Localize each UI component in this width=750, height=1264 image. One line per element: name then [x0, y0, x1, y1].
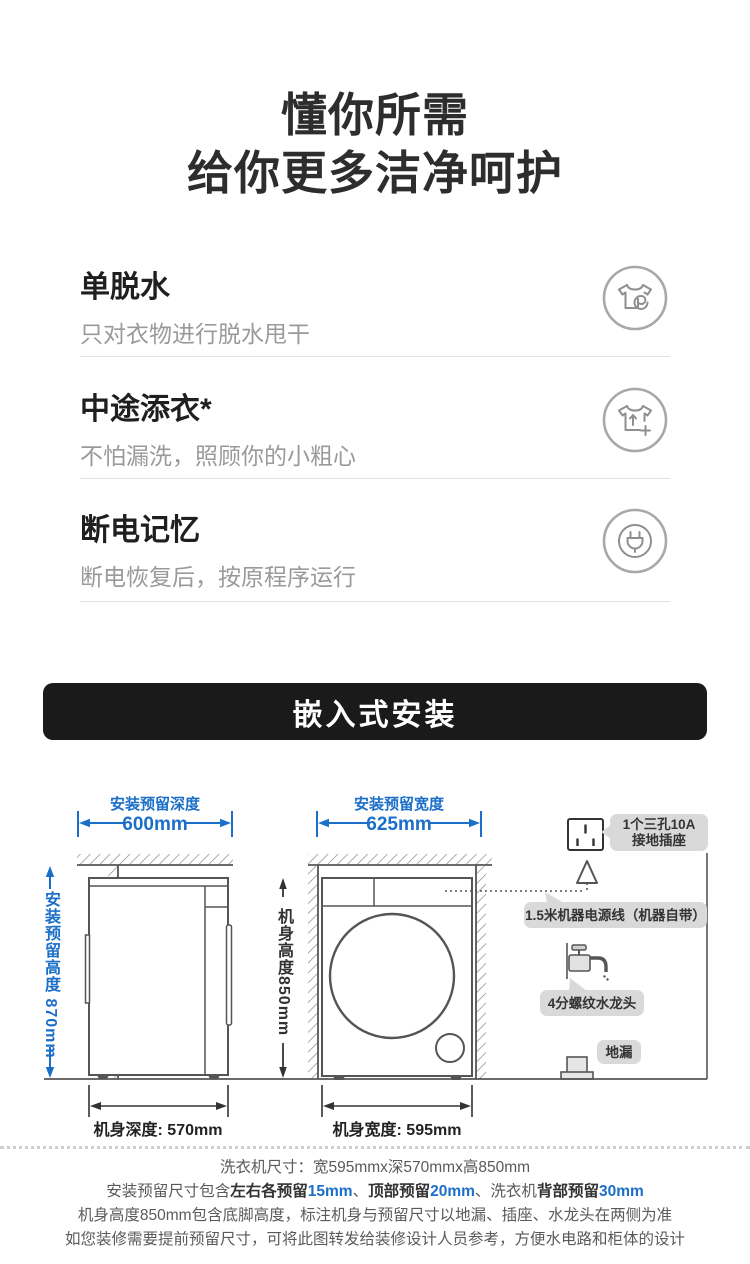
power-plug-icon [602, 508, 668, 574]
footnote-line2-sep1: 、 [353, 1183, 369, 1200]
installation-diagram: 安装预留深度 600mm 安装预留宽度 625mm [40, 795, 710, 1150]
footnote-line3: 机身高度850mm包含底脚高度，标注机身与预留尺寸以地漏、插座、水龙头在两侧为准 [0, 1204, 750, 1228]
body-width-label: 机身宽度: 595mm [333, 1120, 462, 1139]
reserve-width-dimension: 安装预留宽度 625mm [317, 795, 481, 837]
power-cord-label: 1.5米机器电源线（机器自带） [525, 907, 706, 923]
body-depth-dimension: 机身深度: 570mm [89, 1085, 228, 1139]
feature-title: 断电记忆 [80, 505, 670, 549]
footnotes: 洗衣机尺寸：宽595mmx深570mmx高850mm 安装预留尺寸包含左右各预留… [0, 1156, 750, 1252]
drain-label: 地漏 [606, 1044, 634, 1060]
reserve-depth-dimension: 安装预留深度 600mm [78, 795, 232, 837]
faucet-callout: 4分螺纹水龙头 [540, 978, 644, 1016]
footnote-line2-bold3: 背部预留 [537, 1183, 599, 1200]
feature-divider [80, 478, 670, 479]
feature-title: 中途添衣* [80, 384, 670, 428]
plug-icon [577, 861, 597, 883]
feature-desc: 不怕漏洗，照顾你的小粗心 [80, 437, 670, 471]
faucet-icon [567, 943, 609, 981]
reserve-height-label: 安装预留高度 870mm [37, 891, 63, 1059]
spin-dry-shirt-icon [602, 265, 668, 331]
socket-label-line2: 接地插座 [632, 832, 686, 848]
page-title-line2: 给你更多洁净呵护 [0, 144, 750, 202]
page-title: 懂你所需 给你更多洁净呵护 [0, 86, 750, 202]
power-cord-callout: 1.5米机器电源线（机器自带） [524, 892, 707, 928]
feature-desc: 断电恢复后，按原程序运行 [80, 558, 670, 592]
feature-divider [80, 601, 670, 602]
reserve-width-value: 625mm [366, 814, 432, 835]
washer-side-view [86, 878, 232, 1079]
footnote-line2-value1: 15mm [308, 1183, 353, 1200]
faucet-label: 4分螺纹水龙头 [548, 995, 637, 1011]
footnote-line2-plain3: 洗衣机 [490, 1183, 537, 1200]
feature-add-clothes: 中途添衣* 不怕漏洗，照顾你的小粗心 [80, 384, 670, 471]
section-banner-title: 嵌入式安装 [293, 690, 458, 734]
feature-desc: 只对衣物进行脱水甩干 [80, 315, 670, 349]
footnote-line2-sep2: 、 [475, 1183, 491, 1200]
floor-drain-icon [561, 1057, 593, 1079]
drain-callout: 地漏 [597, 1040, 641, 1064]
footnote-line2-value2: 20mm [430, 1183, 475, 1200]
page-title-line1: 懂你所需 [0, 86, 750, 144]
footnote-line2-value3: 30mm [599, 1183, 644, 1200]
footnote-line4: 如您装修需要提前预留尺寸，可将此图转发给装修设计人员参考，方便水电路和柜体的设计 [0, 1228, 750, 1252]
section-banner: 嵌入式安装 [43, 683, 707, 740]
feature-spin-dry: 单脱水 只对衣物进行脱水甩干 [80, 262, 670, 349]
feature-title: 单脱水 [80, 262, 670, 306]
footnote-line2-bold2: 顶部预留 [368, 1183, 430, 1200]
footnote-line1: 洗衣机尺寸：宽595mmx深570mmx高850mm [0, 1156, 750, 1180]
feature-power-memory: 断电记忆 断电恢复后，按原程序运行 [80, 505, 670, 592]
reserve-depth-value: 600mm [122, 814, 188, 835]
footnote-line2-prefix: 安装预留尺寸包含 [106, 1183, 230, 1200]
footnote-line2: 安装预留尺寸包含左右各预留15mm、顶部预留20mm、洗衣机背部预留30mm [0, 1180, 750, 1204]
body-depth-label: 机身深度: 570mm [94, 1120, 223, 1139]
dotted-divider [0, 1146, 750, 1149]
socket-icon [568, 819, 603, 850]
body-height-label: 机身高度850mm [270, 908, 296, 1036]
socket-callout: 1个三孔10A 接地插座 [601, 814, 708, 851]
reserve-depth-label: 安装预留深度 [110, 795, 201, 813]
add-clothes-shirt-icon [602, 387, 668, 453]
washer-front-view [322, 878, 472, 1080]
feature-divider [80, 356, 670, 357]
body-width-dimension: 机身宽度: 595mm [322, 1085, 472, 1139]
footnote-line2-bold1: 左右各预留 [230, 1183, 308, 1200]
reserve-width-label: 安装预留宽度 [354, 795, 445, 813]
socket-label-line1: 1个三孔10A [623, 817, 696, 832]
